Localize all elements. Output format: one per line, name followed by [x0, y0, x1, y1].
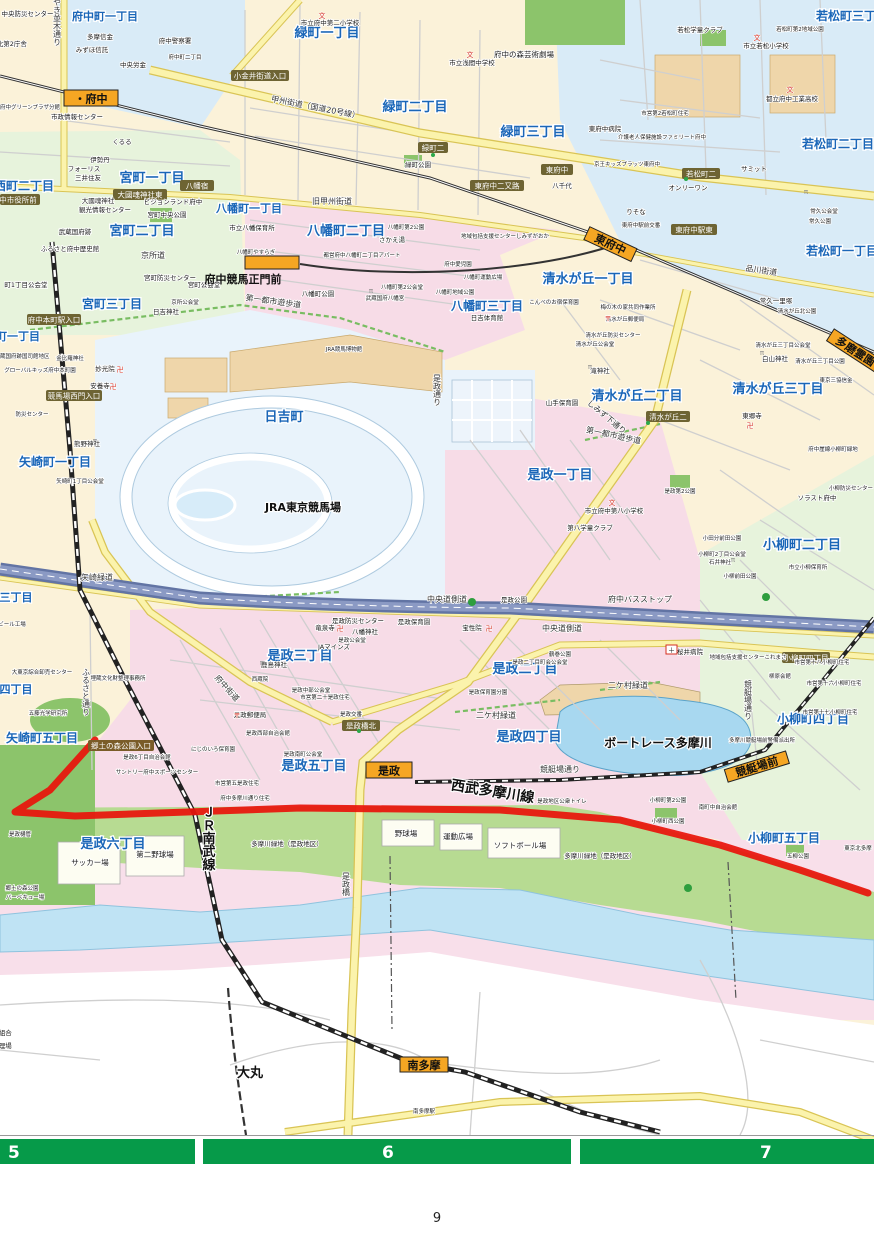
- facility-label: りそな: [626, 208, 646, 216]
- svg-text:是政橋北: 是政橋北: [346, 721, 376, 731]
- road-label: 是政橋: [342, 872, 351, 897]
- area-label: 矢崎町五丁目: [6, 730, 78, 745]
- area-label: 宮町三丁目: [82, 296, 142, 311]
- facility-label: 八幡町第2公会堂: [381, 283, 423, 291]
- facility-label: 市立府中第二小学校: [301, 18, 360, 27]
- area-label: 八幡町一丁目: [215, 201, 282, 215]
- index-number-7: 7: [760, 1143, 772, 1163]
- facility-label: 市立小柳保育所: [789, 563, 828, 571]
- facility-label: 八幡町運動広場: [464, 273, 503, 281]
- facility-label: 都営府中八幡町二丁目アパート: [324, 251, 401, 259]
- svg-text:南多摩: 南多摩: [408, 1058, 442, 1072]
- facility-label: 柳原会館: [769, 672, 792, 680]
- area-label: 日吉町: [264, 410, 303, 425]
- area-label: 若松町二丁目: [801, 136, 874, 151]
- facility-label: 妙光院: [95, 364, 115, 373]
- station-minamitama[interactable]: 南多摩: [400, 1057, 448, 1072]
- facility-label: 矢崎町1丁目公会堂: [56, 477, 104, 485]
- area-label: 緑町三丁目: [500, 124, 565, 140]
- temple-icon: 卍: [110, 383, 117, 391]
- facility-label: 滝神社: [590, 366, 610, 375]
- intersection-label: 八千代: [552, 181, 572, 190]
- svg-text:小金井街道入口: 小金井街道入口: [234, 71, 287, 81]
- facility-label: 小柳防災センター: [829, 484, 873, 492]
- facility-label: 金比羅神社: [56, 354, 84, 362]
- facility-label: 石井神社: [709, 558, 732, 566]
- station-koremasa[interactable]: 是政: [366, 762, 412, 778]
- facility-label: 是政公園: [501, 595, 527, 604]
- area-label: 町一丁目: [0, 330, 40, 343]
- index-number-6: 6: [382, 1143, 394, 1163]
- facility-label: 多摩川競艇場前警備派出所: [729, 736, 796, 744]
- road-label: 矢崎緑道: [81, 572, 113, 582]
- intersection-label: 東府中: [541, 164, 573, 175]
- facility-label: 清水が丘郵便局: [606, 315, 645, 323]
- area-label: 清水が丘一丁目: [542, 271, 633, 287]
- facility-label: 宮町中央公園: [148, 210, 187, 219]
- facility-label: 鹿島神社: [261, 660, 288, 669]
- intersection-label: 東府中駅東: [671, 224, 717, 235]
- facility-label: 緑町公園: [405, 160, 431, 169]
- facility-label: 是政交番: [340, 710, 363, 718]
- facility-label: 府中駅北第2庁舎: [0, 39, 27, 48]
- svg-text:府中競馬正門前: 府中競馬正門前: [205, 272, 282, 286]
- facility-label: サミット: [741, 165, 767, 173]
- facility-label: バーベキュー場: [6, 893, 45, 901]
- facility-label: 是政第2公園: [665, 487, 696, 495]
- svg-text:緑町二: 緑町二: [422, 143, 445, 153]
- school-icon: 文: [609, 498, 616, 507]
- facility-label: 京王キッズプラッツ東府中: [594, 160, 660, 168]
- facility-label: 東京北多摩: [844, 844, 872, 852]
- facility-label: 南町中自治会館: [699, 803, 738, 811]
- intersection-label: 八幡宿: [180, 180, 214, 191]
- facility-label: 小田分前田公園: [703, 534, 742, 542]
- facility-label: 八幡町公園: [302, 289, 335, 298]
- facility-label: 生組合: [0, 1028, 12, 1037]
- facility-label: 大國魂神社: [82, 196, 115, 205]
- road-label: ふるさと通り: [82, 668, 91, 716]
- facility-label: 是政地区公衆トイレ: [537, 797, 587, 805]
- facility-label: 市立浅間中学校: [449, 58, 495, 67]
- temple-icon: 卍: [486, 625, 493, 633]
- facility-label: 東府中駅前交番: [622, 221, 661, 229]
- area-label: ボートレース多摩川: [604, 735, 711, 750]
- road-label: けやき並木通り: [53, 0, 62, 46]
- facility-label: 山手保育園: [546, 398, 579, 407]
- intersection-label: 清水が丘二: [646, 411, 690, 422]
- svg-text:中市役所前: 中市役所前: [0, 195, 37, 205]
- facility-label: ビジョンランド府中: [144, 197, 203, 206]
- facility-label: 運動広場: [443, 831, 473, 841]
- facility-label: 清水が丘三丁目公会堂: [755, 341, 811, 349]
- facility-label: 常久一里塚: [760, 296, 793, 305]
- facility-label: 小柳前田公園: [723, 572, 757, 580]
- svg-text:若松町二: 若松町二: [686, 169, 716, 179]
- facility-label: 多摩信金: [87, 32, 114, 41]
- atlas-page: 府中町一丁目 府中町二丁目 緑町一丁目 緑町二丁目 緑町三丁目 若松町三丁目 若…: [0, 0, 874, 1236]
- svg-text:＋: ＋: [668, 647, 675, 655]
- facility-label: サッカー場: [71, 857, 109, 867]
- intersection-label: 中市役所前: [0, 194, 40, 205]
- area-label: 是政四丁目: [495, 729, 561, 745]
- facility-label: フォーリス: [68, 165, 101, 173]
- area-label: 矢崎町一丁目: [19, 454, 91, 469]
- facility-label: 市政情報センター: [51, 112, 103, 121]
- area-label: 是政五丁目: [280, 758, 346, 774]
- svg-text:是政: 是政: [377, 764, 401, 778]
- facility-label: 府中多摩川通り住宅: [220, 794, 270, 802]
- facility-label: 三井住友: [75, 173, 102, 182]
- facility-label: みずほ信託: [76, 45, 109, 54]
- svg-text:競馬場西門入口: 競馬場西門入口: [48, 391, 101, 401]
- facility-label: 処理場: [0, 1041, 12, 1050]
- facility-label: こんべのお宿保育園: [529, 298, 579, 306]
- intersection-label: 郷土の森公園入口: [88, 740, 154, 751]
- facility-label: くるる: [112, 138, 131, 146]
- intersection-label: 緑町二: [418, 142, 448, 153]
- map-canvas[interactable]: 府中町一丁目 府中町二丁目 緑町一丁目 緑町二丁目 緑町三丁目 若松町三丁目 若…: [0, 0, 874, 1236]
- svg-text:八幡宿: 八幡宿: [186, 181, 209, 191]
- facility-label: 第八学童クラブ: [567, 523, 613, 532]
- facility-label: 是政保育園: [398, 617, 431, 626]
- facility-label: 町1丁目公会堂: [4, 280, 48, 289]
- facility-label: 府中消防署・中央防災センター: [0, 9, 54, 18]
- facility-label: 八幡神社: [352, 627, 379, 636]
- area-label: 緑町二丁目: [382, 99, 447, 115]
- facility-label: 清水が丘公会堂: [576, 340, 615, 348]
- facility-label: 観光情報センター: [79, 205, 131, 214]
- tree-icon: [762, 593, 770, 601]
- facility-label: ふるさと府中歴史館: [41, 244, 100, 253]
- road-label: 中央道側道: [427, 594, 467, 604]
- facility-label: 小柳町西公園: [651, 817, 685, 825]
- area-label: 八幡町三丁目: [450, 298, 523, 313]
- svg-text:東府中: 東府中: [546, 165, 569, 175]
- facility-label: 安養寺: [90, 381, 110, 390]
- page-number: 9: [433, 1211, 441, 1226]
- facility-label: 八幡町地域公園: [436, 288, 475, 296]
- index-bar: 5 6 7: [0, 1139, 874, 1164]
- facility-label: 八幡町第2公園: [388, 223, 425, 231]
- road-label: 京所道: [141, 250, 165, 260]
- facility-label: 小柳町2丁目公会堂: [698, 550, 746, 558]
- svg-text:東府中駅東: 東府中駅東: [675, 225, 713, 235]
- facility-label: 野球場: [395, 828, 418, 838]
- railway-label: ＪＲ南武線: [200, 806, 216, 872]
- area-label: 若松町一丁目: [805, 243, 874, 258]
- facility-label: 大東京綜合卸売センター: [12, 668, 73, 676]
- intersection-label: 府中本町駅入口: [27, 314, 81, 325]
- area-label: 小柳町五丁目: [748, 830, 820, 845]
- facility-label: 五藤光学研究所: [29, 709, 68, 717]
- road-label: 競艇場通り: [744, 679, 753, 720]
- facility-label: 市営第2若松町住宅: [641, 109, 689, 117]
- facility-label: 五柳公園: [787, 852, 810, 860]
- area-label: 八幡町二丁目: [306, 223, 385, 239]
- facility-label: にじのいろ保育園: [191, 745, 236, 753]
- area-label: 大丸: [237, 1065, 264, 1081]
- facility-label: 是政西部自治会館: [246, 729, 291, 737]
- racecourse-building: [165, 358, 227, 392]
- facility-label: 介護老人保健施設ファミリート府中: [618, 133, 706, 141]
- traffic-signal-icon: [431, 153, 435, 157]
- facility-label: 常久公会堂: [810, 207, 838, 215]
- school-icon: 文: [754, 33, 761, 42]
- facility-label: 市営第十六小柳町住宅: [806, 679, 862, 687]
- road-label: 二ケ村緑道: [608, 680, 648, 690]
- road-label: 是政通り: [433, 374, 442, 406]
- facility-label: ソフトボール場: [494, 840, 547, 850]
- facility-label: 第二野球場: [136, 849, 174, 859]
- facility-label: 是政二丁目町会公会堂: [512, 658, 568, 666]
- facility-label: 是政防災センター: [332, 616, 384, 625]
- facility-label: 常久公園: [809, 217, 832, 225]
- index-number-5: 5: [8, 1143, 20, 1163]
- facility-label: 是政中部公会堂: [292, 686, 331, 694]
- intersection-label: 若松町二: [682, 168, 720, 179]
- traffic-signal-icon: [357, 729, 361, 733]
- area-label: 清水が丘三丁目: [732, 381, 823, 397]
- facility-label: 清水が丘三丁目公園: [795, 357, 845, 365]
- facility-label: 京所公会堂: [171, 298, 199, 306]
- facility-label: ソラスト府中: [798, 493, 837, 502]
- tree-icon: [684, 884, 692, 892]
- road-label: 二ケ村緑道: [476, 710, 516, 720]
- temple-icon: 卍: [747, 422, 754, 430]
- area-label: 緑町一丁目: [294, 25, 359, 41]
- koremasa-dai2-park: [670, 475, 690, 488]
- area-label: JRA東京競馬場: [264, 500, 341, 514]
- facility-label: 梅の木の家共同作業所: [600, 303, 656, 311]
- index-cell-5[interactable]: [0, 1139, 195, 1164]
- intersection-label: 是政橋北: [342, 720, 380, 731]
- facility-label: 市立若松小学校: [743, 41, 789, 50]
- post-icon: 〒: [605, 315, 612, 323]
- facility-label: 市立八幡保育所: [229, 223, 275, 232]
- facility-label: 伊勢丹: [90, 155, 110, 164]
- facility-label: 府中崖線小柳町緑地: [808, 445, 858, 453]
- facility-label: 東京三協信金: [819, 376, 853, 384]
- hospital-icon: ＋: [666, 645, 677, 655]
- facility-label: 南多摩駅: [413, 1107, 436, 1115]
- facility-label: 是政6丁目自治会館: [123, 753, 171, 761]
- facility-label: 市営第二十是政住宅: [300, 693, 350, 701]
- facility-label: 白山神社: [762, 354, 789, 363]
- facility-label: オンリーワン: [669, 184, 708, 192]
- svg-text:郷土の森公園入口: 郷土の森公園入口: [91, 741, 151, 751]
- area-label: 是政一丁目: [526, 467, 592, 483]
- facility-label: 清水が丘防災センター: [585, 331, 640, 339]
- facility-label: 清水が丘北公園: [778, 307, 817, 315]
- tree-icon: [468, 598, 476, 606]
- facility-label: 市営第十八小柳町住宅: [794, 658, 850, 666]
- svg-text:八千代: 八千代: [552, 181, 572, 190]
- intersection-label: 小金井街道入口: [231, 70, 289, 81]
- school-icon: 文: [467, 50, 474, 59]
- traffic-signal-icon: [646, 421, 650, 425]
- facility-label: 小柳町第2公園: [650, 796, 687, 804]
- facility-label: 府中の森芸術劇場: [494, 49, 554, 59]
- facility-label: 多摩川緑地（是政地区）: [251, 839, 323, 848]
- facility-label: 是政保育園分園: [469, 688, 508, 696]
- facility-label: 東府中病院: [589, 124, 622, 133]
- school-icon: 文: [787, 85, 794, 94]
- facility-label: 武蔵国府跡: [59, 227, 92, 236]
- area-label: 宮町一丁目: [119, 170, 184, 186]
- facility-label: 日吉体育館: [471, 313, 504, 322]
- facility-label: 防災センター: [15, 410, 48, 418]
- facility-label: 中央労金: [120, 60, 147, 69]
- facility-label: 郷土の森公園: [5, 884, 39, 892]
- area-label: 西町二丁目: [0, 179, 54, 193]
- road-label: 旧甲州街道: [312, 196, 352, 206]
- facility-label: 西蔵院: [252, 675, 269, 683]
- facility-label: 府中グリーンプラザ分館: [0, 103, 61, 111]
- art-theater-building: [655, 55, 740, 117]
- temple-icon: 卍: [117, 366, 124, 374]
- facility-label: 宝性院: [462, 623, 482, 632]
- station-fuchu[interactable]: ・府中: [64, 90, 118, 106]
- area-label: 宮町二丁目: [109, 223, 174, 239]
- facility-label: 市営第五是政住宅: [215, 779, 260, 787]
- road-label: 競艇場通り: [540, 764, 580, 774]
- area-label: 三丁目: [0, 591, 33, 604]
- facility-label: JAマインズ: [317, 642, 351, 651]
- facility-label: 多摩川緑地（是政地区）: [564, 851, 636, 860]
- facility-label: JRA競馬博物館: [325, 345, 363, 353]
- facility-label: 埋蔵文化財整理事務所: [90, 674, 146, 682]
- traffic-signal-icon: [684, 177, 688, 181]
- facility-label: 都立府中工業高校: [766, 94, 819, 103]
- facility-label: 府中警察署: [159, 36, 192, 45]
- area-label: 若松町三丁目: [815, 8, 874, 23]
- area-label: 清水が丘二丁目: [591, 388, 682, 404]
- facility-label: 地域包括支援センターしみずがおか: [461, 232, 550, 240]
- road-label: 中央道側道: [542, 623, 582, 633]
- area-label: 府中町一丁目: [72, 9, 138, 23]
- facility-label: 東郷寺: [742, 411, 762, 420]
- facility-label: 市営第十七小柳町住宅: [802, 708, 858, 716]
- svg-text:府中本町駅入口: 府中本町駅入口: [28, 315, 81, 325]
- facility-label: ビール工場: [0, 620, 26, 628]
- index-cell-7[interactable]: [580, 1139, 874, 1164]
- facility-label: 日吉神社: [153, 307, 180, 316]
- facility-label: さかえ湯: [379, 235, 406, 244]
- facility-label: 八幡町やすらぎ: [237, 248, 276, 256]
- facility-label: グローバルキッズ府中本町園: [4, 366, 76, 374]
- facility-label: 武蔵国府八幡宮: [366, 294, 405, 302]
- area-label: 四丁目: [0, 683, 33, 696]
- facility-label: 地域包括支援センターこれまさ: [709, 653, 786, 661]
- facility-label: 市立府中第八小学校: [585, 506, 644, 515]
- facility-label: 鶴巻公園: [549, 650, 572, 658]
- facility-label: 若松町第2地域公園: [776, 25, 824, 33]
- facility-label: 若松学童クラブ: [677, 25, 723, 34]
- temple-icon: 卍: [337, 625, 344, 633]
- facility-label: 武蔵国府跡国司館地区: [0, 352, 50, 360]
- facility-label: 竜泉寺: [315, 623, 335, 632]
- area-label: 小柳町二丁目: [763, 537, 841, 553]
- svg-text:清水が丘二: 清水が丘二: [649, 412, 687, 422]
- road-label: 府中バスストップ: [608, 594, 672, 604]
- facility-label: 是政南町公会堂: [284, 750, 323, 758]
- facility-label: 府中愛児園: [444, 260, 472, 268]
- svg-text:・府中: ・府中: [75, 92, 108, 106]
- facility-label: 是政樋管: [9, 830, 32, 838]
- kogyo-hs-building: [770, 55, 835, 113]
- svg-text:東府中二又路: 東府中二又路: [475, 181, 520, 191]
- school-icon: 文: [319, 11, 326, 20]
- intersection-label: 東府中二又路: [470, 180, 524, 191]
- area-label: 府中町二丁目: [168, 53, 201, 61]
- fuchunomori-park: [525, 0, 625, 45]
- facility-label: サントリー府中スポーツセンター: [116, 768, 198, 776]
- facility-label: 桜井病院: [677, 647, 704, 656]
- post-icon: 〒: [234, 712, 241, 720]
- intersection-label: 競馬場西門入口: [46, 390, 102, 401]
